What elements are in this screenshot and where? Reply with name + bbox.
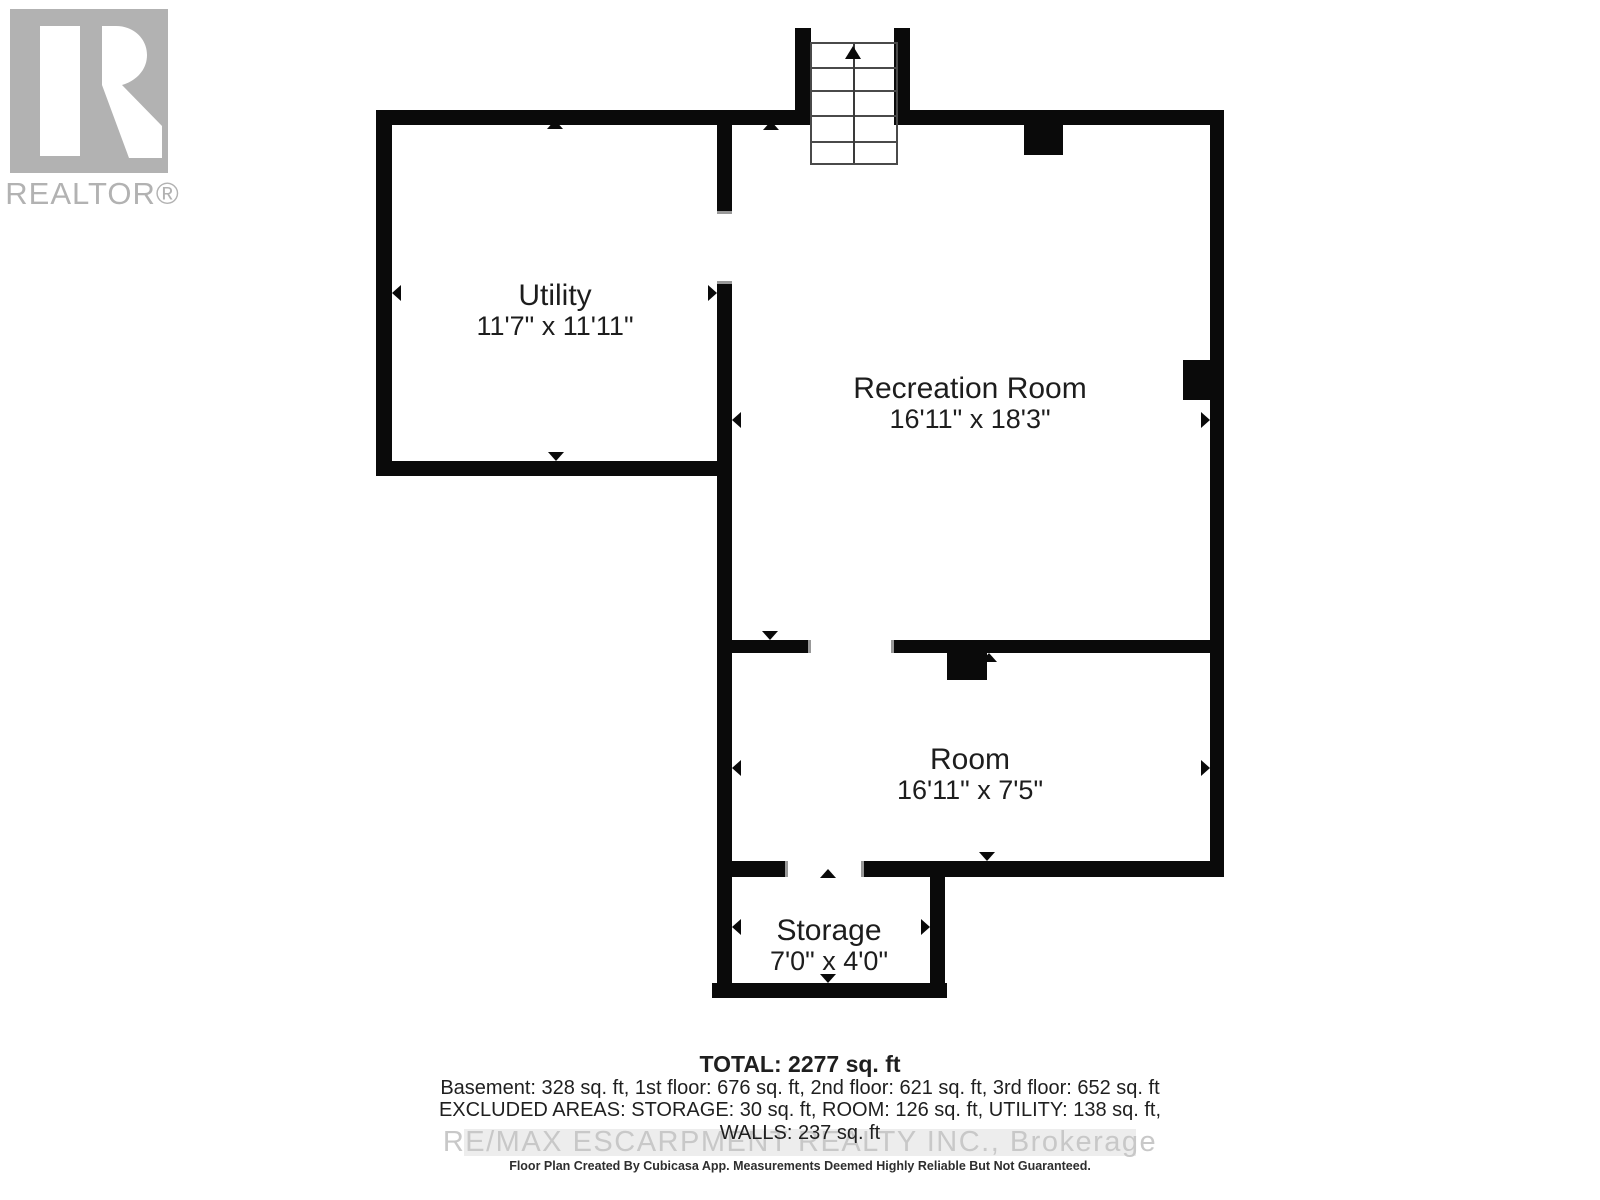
total-area-text: TOTAL: 2277 sq. ft <box>0 1051 1600 1078</box>
room-dimensions: 16'11" x 18'3" <box>853 404 1086 435</box>
realtor-logo-label: REALTOR® <box>0 176 185 212</box>
wall-divider-left <box>717 640 810 653</box>
measure-arrow-up-icon <box>981 653 997 662</box>
wall-stairwell-left <box>795 28 811 125</box>
door-jamb-storage-right <box>861 861 864 877</box>
wall-utility-left <box>376 110 392 476</box>
measure-arrow-up-icon <box>820 869 836 878</box>
wall-center-upper <box>717 110 732 213</box>
room-label-storage: Storage 7'0" x 4'0" <box>770 915 888 977</box>
door-jamb-divider-right <box>891 640 894 653</box>
floor-areas-text: Basement: 328 sq. ft, 1st floor: 676 sq.… <box>0 1077 1600 1100</box>
measure-arrow-down-icon <box>762 631 778 640</box>
measure-arrow-left-icon <box>392 285 401 301</box>
stairs-up-arrow-icon <box>845 46 861 59</box>
measure-arrow-left-icon <box>732 760 741 776</box>
room-label-recreation: Recreation Room 16'11" x 18'3" <box>853 373 1086 435</box>
wall-storage-bottom <box>712 983 947 998</box>
measure-arrow-left-icon <box>732 919 741 935</box>
wall-right <box>1210 110 1224 877</box>
excluded-areas-text: EXCLUDED AREAS: STORAGE: 30 sq. ft, ROOM… <box>0 1099 1600 1122</box>
wall-top-right <box>910 110 1224 125</box>
wall-divider-right <box>893 640 1224 653</box>
measure-arrow-up-icon <box>547 120 563 129</box>
measure-arrow-right-icon <box>708 285 717 301</box>
disclaimer-text: Floor Plan Created By Cubicasa App. Meas… <box>0 1159 1600 1173</box>
measure-arrow-up-icon <box>763 121 779 130</box>
wall-room-bottom-right <box>863 861 1224 877</box>
measure-arrow-down-icon <box>979 852 995 861</box>
door-jamb-divider-left <box>808 640 811 653</box>
door-jamb-utility-top <box>717 211 732 214</box>
measure-arrow-down-icon <box>548 452 564 461</box>
room-name: Room <box>897 744 1043 775</box>
wall-utility-bottom <box>376 461 732 476</box>
room-dimensions: 7'0" x 4'0" <box>770 946 888 977</box>
room-name: Storage <box>770 915 888 946</box>
wall-room-bottom-left <box>717 861 787 877</box>
door-jamb-utility-bottom <box>717 281 732 284</box>
measure-arrow-right-icon <box>921 919 930 935</box>
staircase <box>810 42 898 165</box>
room-dimensions: 11'7" x 11'11" <box>476 311 633 342</box>
wall-storage-right <box>930 861 945 998</box>
room-name: Utility <box>476 280 633 311</box>
wall-post-top <box>1024 124 1063 155</box>
room-label-room: Room 16'11" x 7'5" <box>897 744 1043 806</box>
room-dimensions: 16'11" x 7'5" <box>897 775 1043 806</box>
realtor-r-icon <box>10 9 168 173</box>
realtor-logo: REALTOR® <box>0 0 200 220</box>
walls-area-text: WALLS: 237 sq. ft <box>0 1122 1600 1145</box>
door-jamb-storage-left <box>785 861 788 877</box>
room-name: Recreation Room <box>853 373 1086 404</box>
stair-center-line <box>853 44 855 163</box>
measure-arrow-left-icon <box>732 412 741 428</box>
wall-post-right <box>1183 360 1210 400</box>
measure-arrow-right-icon <box>1201 760 1210 776</box>
floor-plan-page: REALTOR® <box>0 0 1600 1200</box>
wall-top-left <box>376 110 795 125</box>
measure-arrow-right-icon <box>1201 412 1210 428</box>
room-label-utility: Utility 11'7" x 11'11" <box>476 280 633 342</box>
